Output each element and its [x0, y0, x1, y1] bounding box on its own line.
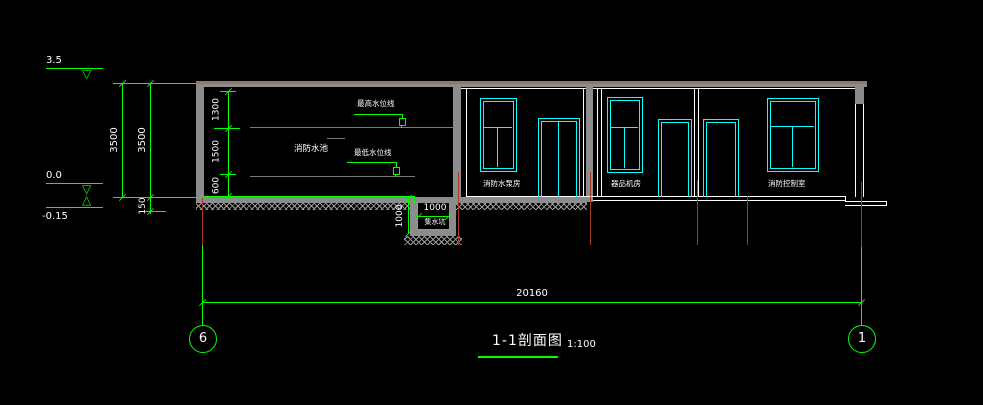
drawing-title: 1-1剖面图	[492, 334, 563, 349]
high-water-label: 最高水位线	[357, 100, 395, 108]
wall-face	[583, 88, 584, 196]
wall-face	[694, 88, 695, 196]
axis-line	[747, 196, 748, 245]
slab-dim: 150	[137, 191, 149, 221]
overall-dim-line	[202, 302, 861, 303]
axis-line	[202, 198, 203, 245]
axis-line	[458, 172, 459, 245]
door1-center-split	[558, 121, 559, 196]
sump-pit-label: 集水坑	[420, 219, 450, 227]
roof-slab-concrete	[196, 84, 867, 87]
zero-elevation-value: 0.0	[46, 170, 62, 181]
zero-elevation-line	[46, 183, 103, 184]
elevation-triangle-icon: ▽	[82, 68, 91, 80]
pit-under-hatch	[404, 236, 462, 245]
low-water-leader	[347, 162, 397, 163]
room2-label: 器品机房	[611, 180, 641, 188]
ground-hatch	[196, 203, 410, 210]
door3-inner	[706, 122, 736, 197]
water-depth-dim: 1500	[210, 127, 223, 177]
room1-label: 消防水泵房	[483, 180, 521, 188]
minus-elevation-value: -0.15	[42, 211, 68, 222]
door1-inner	[541, 121, 577, 197]
interior-dim-line	[228, 91, 229, 196]
ceiling-line	[460, 88, 856, 89]
axis-extension	[202, 245, 203, 325]
ground-line	[593, 200, 845, 201]
pit-edge-connector	[414, 196, 415, 203]
axis-bubble-right: 1	[848, 325, 876, 353]
window2-mullion	[624, 127, 625, 168]
step-tread-a	[845, 201, 887, 202]
roof-elevation-value: 3.5	[46, 55, 62, 66]
pit-depth-dim-line	[408, 198, 409, 234]
tank-label: 消防水池	[294, 145, 328, 154]
roof-elevation-line	[46, 68, 103, 69]
dim-extension-bottom	[113, 197, 204, 198]
axis-extension	[861, 247, 862, 325]
right-wall-face-b	[863, 104, 864, 197]
cad-section-drawing: 1000 集水坑 1000 3.5 ▽ 0.0 ▽ △ -0.15 3500 3…	[0, 0, 983, 405]
axis-bubble-left: 6	[189, 325, 217, 353]
height-dim-inner: 3500	[135, 110, 149, 170]
tank-left-wall	[196, 84, 204, 198]
room-floor-line	[466, 196, 845, 197]
window3-mullion	[792, 126, 793, 167]
elevation-triangle-icon: △	[82, 194, 91, 206]
axis-line	[861, 182, 862, 247]
pit-width-dim: 1000	[420, 204, 450, 214]
window3-inner	[770, 101, 816, 169]
height-dim-line-inner	[150, 83, 151, 214]
axis-line	[697, 180, 698, 245]
axis-line	[590, 172, 591, 245]
room3-label: 消防控制室	[768, 180, 806, 188]
step-edge	[886, 201, 887, 206]
tank-right-wall	[453, 84, 461, 198]
door2-inner	[661, 122, 689, 197]
overall-dim: 20160	[502, 288, 562, 299]
minus-elevation-line	[46, 207, 103, 208]
pit-right-wall	[449, 197, 456, 235]
step-tread-b	[845, 205, 887, 206]
right-wall-face-a	[855, 104, 856, 197]
drawing-scale: 1:100	[567, 339, 596, 350]
height-dim-line-outer	[122, 83, 123, 197]
wall-face	[698, 88, 699, 196]
right-wall-beam	[855, 84, 864, 104]
lower-dim: 600	[210, 171, 223, 201]
wall-face	[597, 88, 598, 196]
high-water-line	[250, 127, 454, 128]
low-water-line	[250, 176, 415, 177]
low-water-label: 最低水位线	[354, 149, 392, 157]
wall-face	[601, 88, 602, 196]
high-water-leader	[354, 114, 403, 115]
pit-width-dim-line	[418, 216, 449, 217]
float-valve-stem	[401, 125, 402, 128]
title-underline	[478, 356, 558, 358]
dim-extension-top	[113, 83, 196, 84]
float-valve-stem	[395, 174, 396, 177]
window1-mullion	[497, 127, 498, 167]
window1-inner	[483, 101, 514, 169]
pipe-dash	[327, 138, 345, 139]
wall-face	[466, 88, 467, 196]
ground-hatch	[456, 203, 587, 210]
pit-inner-bottom	[417, 229, 450, 230]
pit-depth-dim: 1000	[394, 201, 406, 231]
window2-inner	[610, 100, 640, 170]
height-dim-outer: 3500	[107, 110, 121, 170]
